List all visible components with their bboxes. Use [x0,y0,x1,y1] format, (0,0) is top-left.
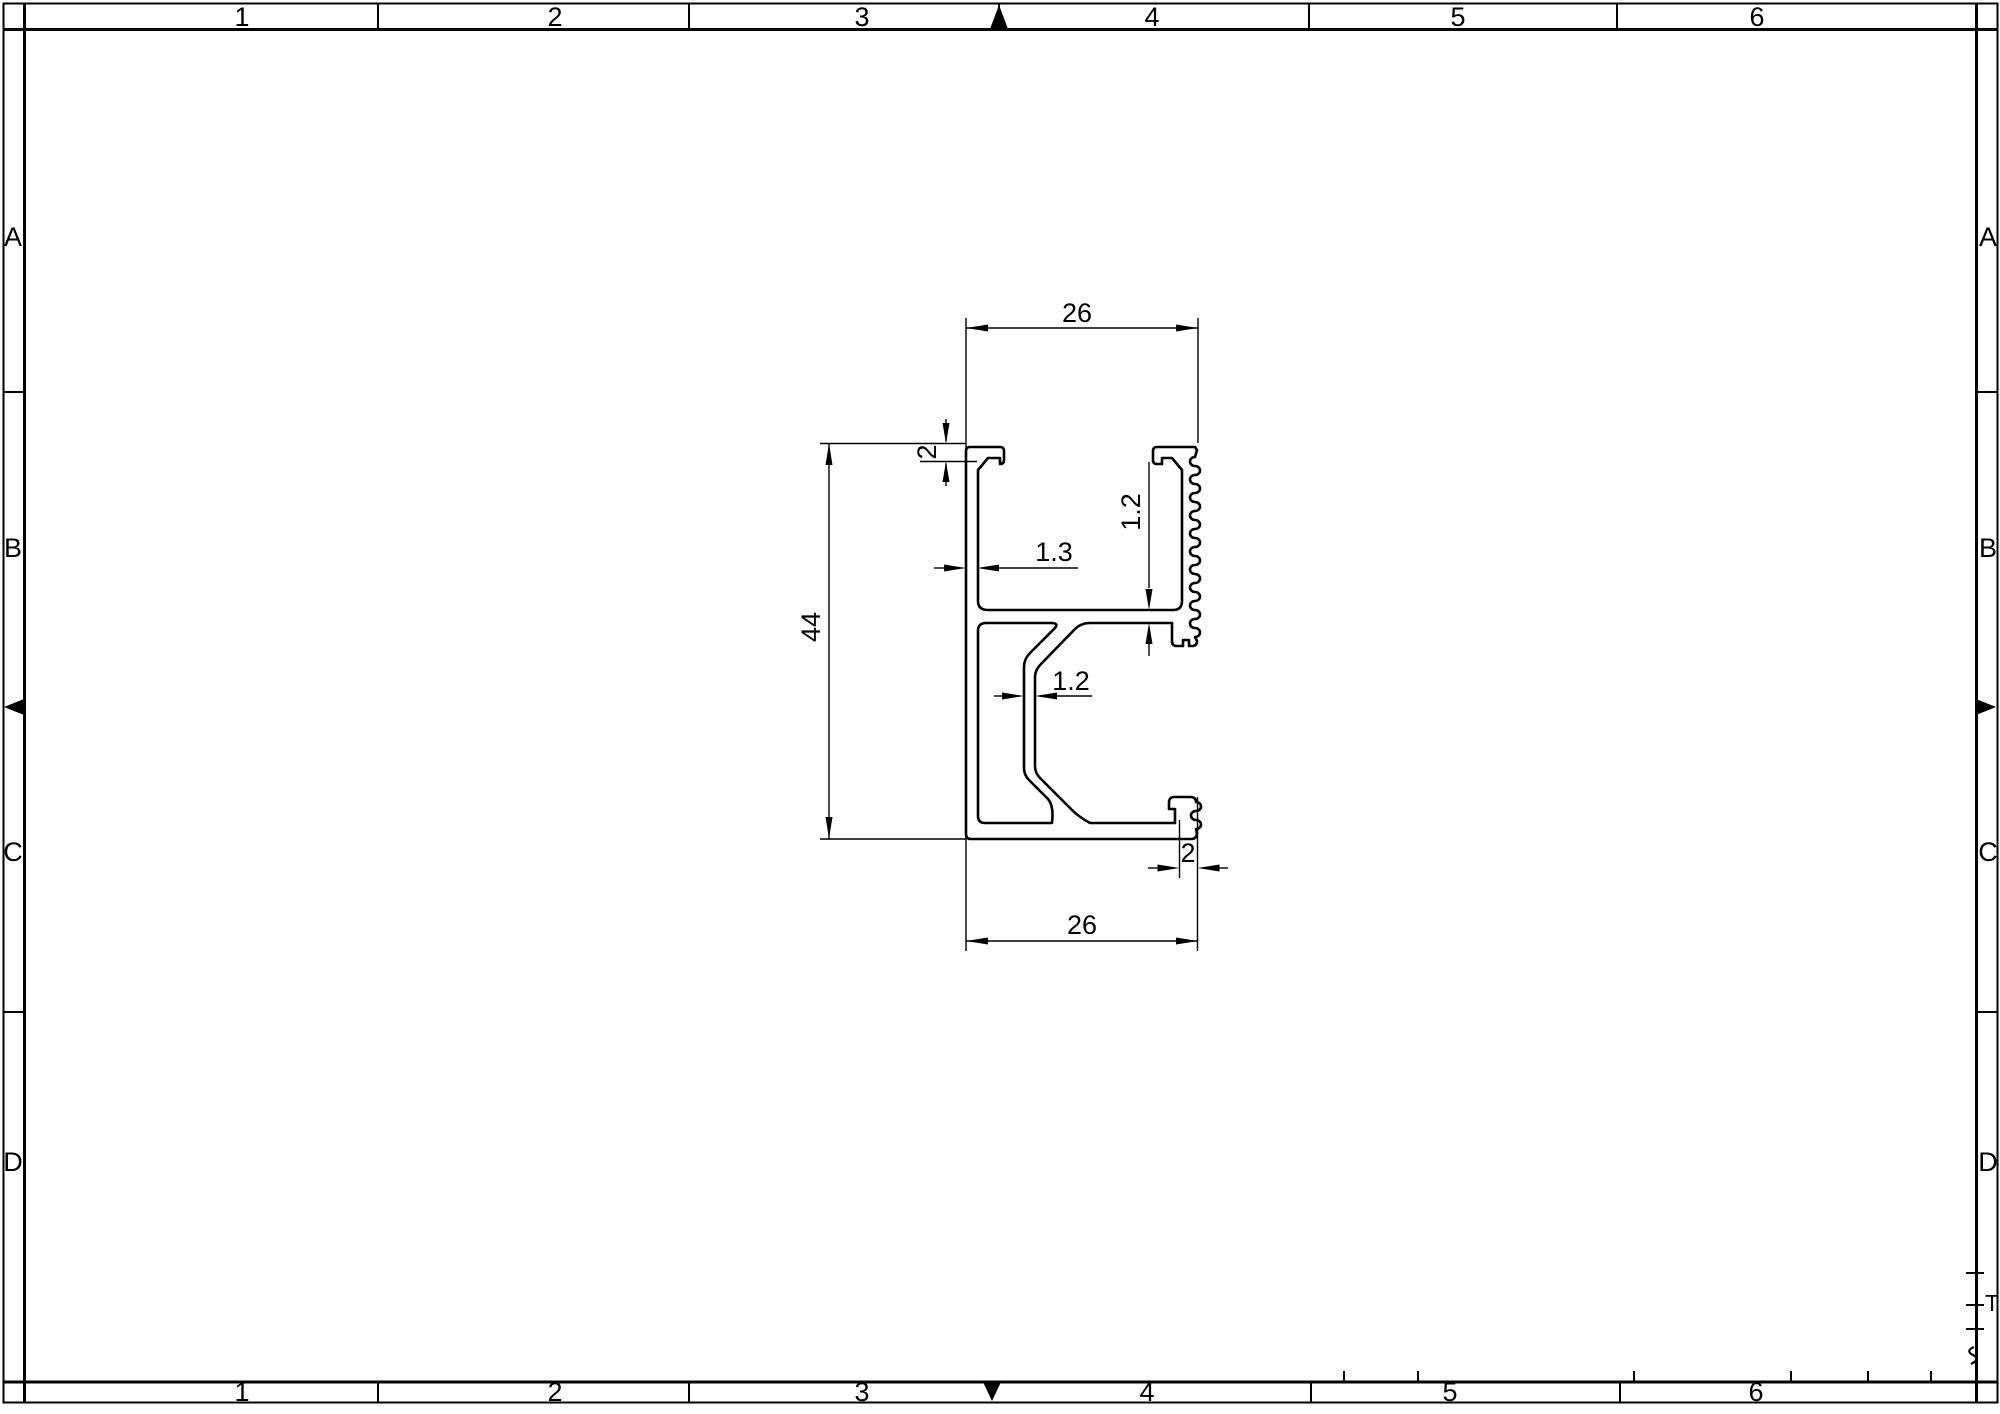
profile-outline [966,447,1201,839]
dim-height-value: 44 [796,612,826,642]
dim-width-top-value: 26 [1062,298,1092,328]
titleblock-remnant-ticks [1344,1273,1984,1382]
centering-mark-top [990,5,1008,29]
dim-top-flange-value: 2 [912,444,942,459]
dim-inner-wall: 1.2 [994,666,1092,700]
zone-col-label: 4 [1139,1377,1154,1407]
centering-mark-left [4,699,24,715]
dim-inner-wall-value: 1.2 [1052,666,1090,696]
border-frame [3,3,1998,1403]
zone-col-label: 6 [1748,1377,1763,1407]
dim-bottom-hook-value: 2 [1180,838,1195,868]
profile-cross-section [966,447,1201,839]
centering-mark-bottom [983,1382,1001,1401]
dim-height: 44 [796,444,833,839]
zone-row-label: B [4,533,22,563]
cad-drawing-svg: 1 2 3 4 5 6 1 2 3 4 5 6 A B C D A B C D … [0,0,2000,1414]
zone-col-label: 3 [854,2,869,32]
zone-col-label: 1 [234,2,249,32]
dim-top-flange: 2 [912,419,950,486]
dim-width-top: 26 [966,298,1198,332]
dim-web: 1.2 [1116,462,1153,656]
dimensions: 26 26 44 2 1.3 [796,298,1228,951]
zone-col-label: 2 [547,1377,562,1407]
zone-labels-right: A B C D [1978,222,1998,1177]
zone-col-label: 3 [854,1377,869,1407]
zone-row-label: A [1979,222,1997,252]
extension-lines [820,318,1198,951]
zone-row-label: C [3,837,23,867]
zone-row-label: D [3,1147,23,1177]
dim-wall: 1.3 [934,537,1078,572]
zone-col-label: 5 [1442,1377,1457,1407]
centering-marks [4,5,1996,1401]
zone-row-label: A [4,222,22,252]
dim-bottom-hook: 2 [1148,838,1228,872]
zone-col-label: 1 [234,1377,249,1407]
dim-web-value: 1.2 [1116,493,1146,531]
zone-row-label: D [1978,1147,1998,1177]
row-dividers [3,392,1998,1012]
outer-border [4,4,1998,1403]
centering-mark-right [1976,699,1996,715]
zone-col-label: 2 [547,2,562,32]
zone-col-label: 4 [1144,2,1159,32]
dim-wall-value: 1.3 [1035,537,1073,567]
zone-row-label: B [1979,533,1997,563]
zone-col-label: 6 [1749,2,1764,32]
dim-width-bottom: 26 [966,910,1198,945]
corner-remnant-text: T [1985,1290,1999,1316]
drawing-sheet: 1 2 3 4 5 6 1 2 3 4 5 6 A B C D A B C D … [0,0,2000,1414]
dim-width-bottom-value: 26 [1067,910,1097,940]
zone-row-label: C [1978,837,1998,867]
zone-col-label: 5 [1450,2,1465,32]
zone-labels-left: A B C D [3,222,23,1177]
